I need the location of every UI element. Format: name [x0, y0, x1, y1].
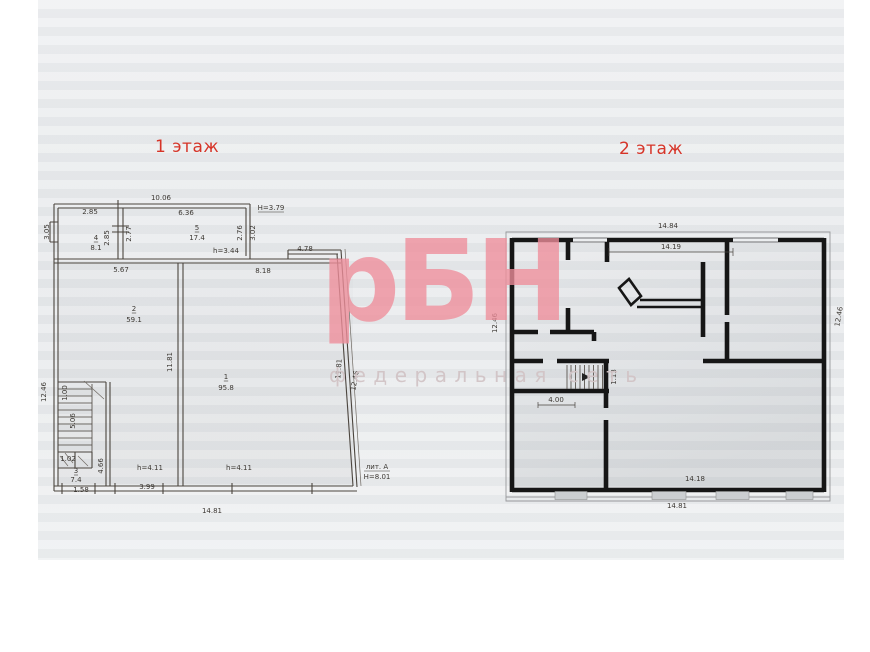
- dimension-label: h=4.11: [137, 464, 163, 472]
- floor2-title: 2 этаж: [619, 139, 683, 159]
- dimension-label: 4.78: [297, 245, 313, 253]
- dimension-label: 10.06: [151, 194, 172, 202]
- dimension-label: 14.81: [202, 507, 222, 515]
- dimension-label: 2.77: [125, 226, 133, 242]
- dimension-label: 2.76: [236, 225, 244, 241]
- dimension-label: 5.06: [69, 413, 77, 429]
- dimension-label: 3.99: [139, 483, 155, 491]
- watermark-logo: рБН: [320, 226, 564, 338]
- dimension-label: h=3.44: [213, 247, 239, 255]
- floor1-bottom-ticks: [62, 483, 312, 494]
- dimension-label: 1.00: [61, 385, 69, 401]
- dimension-label: 3: [74, 467, 78, 475]
- dimension-label: 8.18: [255, 267, 271, 275]
- dimension-label: 17.4: [189, 234, 205, 242]
- floor2-window-sills: [555, 492, 813, 500]
- dimension-label: Н=8.01: [364, 473, 391, 481]
- dimension-label: 4.00: [548, 396, 564, 404]
- dimension-label: 5.67: [113, 266, 129, 274]
- dimension-label: 5: [195, 224, 199, 232]
- dimension-label: 11.81: [166, 352, 174, 372]
- dimension-label: 3.02: [249, 225, 257, 241]
- dimension-label: 8.1: [90, 244, 101, 252]
- dimension-label: 14.81: [667, 502, 687, 510]
- dimension-label: 1.02: [60, 455, 76, 463]
- dimension-label: 12.46: [833, 306, 844, 328]
- dimension-label: 95.8: [218, 384, 234, 392]
- dimension-label: лит. А: [366, 463, 389, 471]
- scanned-floorplan-page: 10.062.856.36Н=3.793.052.852.7748.1517.4…: [0, 0, 870, 652]
- watermark-tagline: федеральная сеть: [329, 363, 645, 387]
- dimension-label: 4: [94, 234, 99, 242]
- floor1-title: 1 этаж: [155, 137, 219, 157]
- dimension-label: 12.46: [40, 381, 48, 402]
- dimension-label: 4.66: [97, 458, 105, 474]
- dimension-label: 2: [132, 305, 136, 313]
- dimension-label: 7.4: [70, 476, 82, 484]
- dimension-label: 14.84: [658, 222, 679, 230]
- dimension-label: 3.05: [43, 224, 51, 240]
- floor1-shading: [58, 264, 353, 484]
- dimension-label: 14.18: [685, 475, 705, 483]
- dimension-label: 59.1: [126, 316, 142, 324]
- dimension-label: 14.19: [661, 243, 681, 251]
- dimension-label: 1: [224, 373, 228, 381]
- dimension-label: Н=3.79: [258, 204, 285, 212]
- dimension-label: 6.36: [178, 209, 194, 217]
- dimension-label: 1.58: [73, 486, 89, 494]
- dimension-label: h=4.11: [226, 464, 252, 472]
- dimension-label: 2.85: [82, 208, 98, 216]
- dimension-label: 2.85: [103, 230, 111, 246]
